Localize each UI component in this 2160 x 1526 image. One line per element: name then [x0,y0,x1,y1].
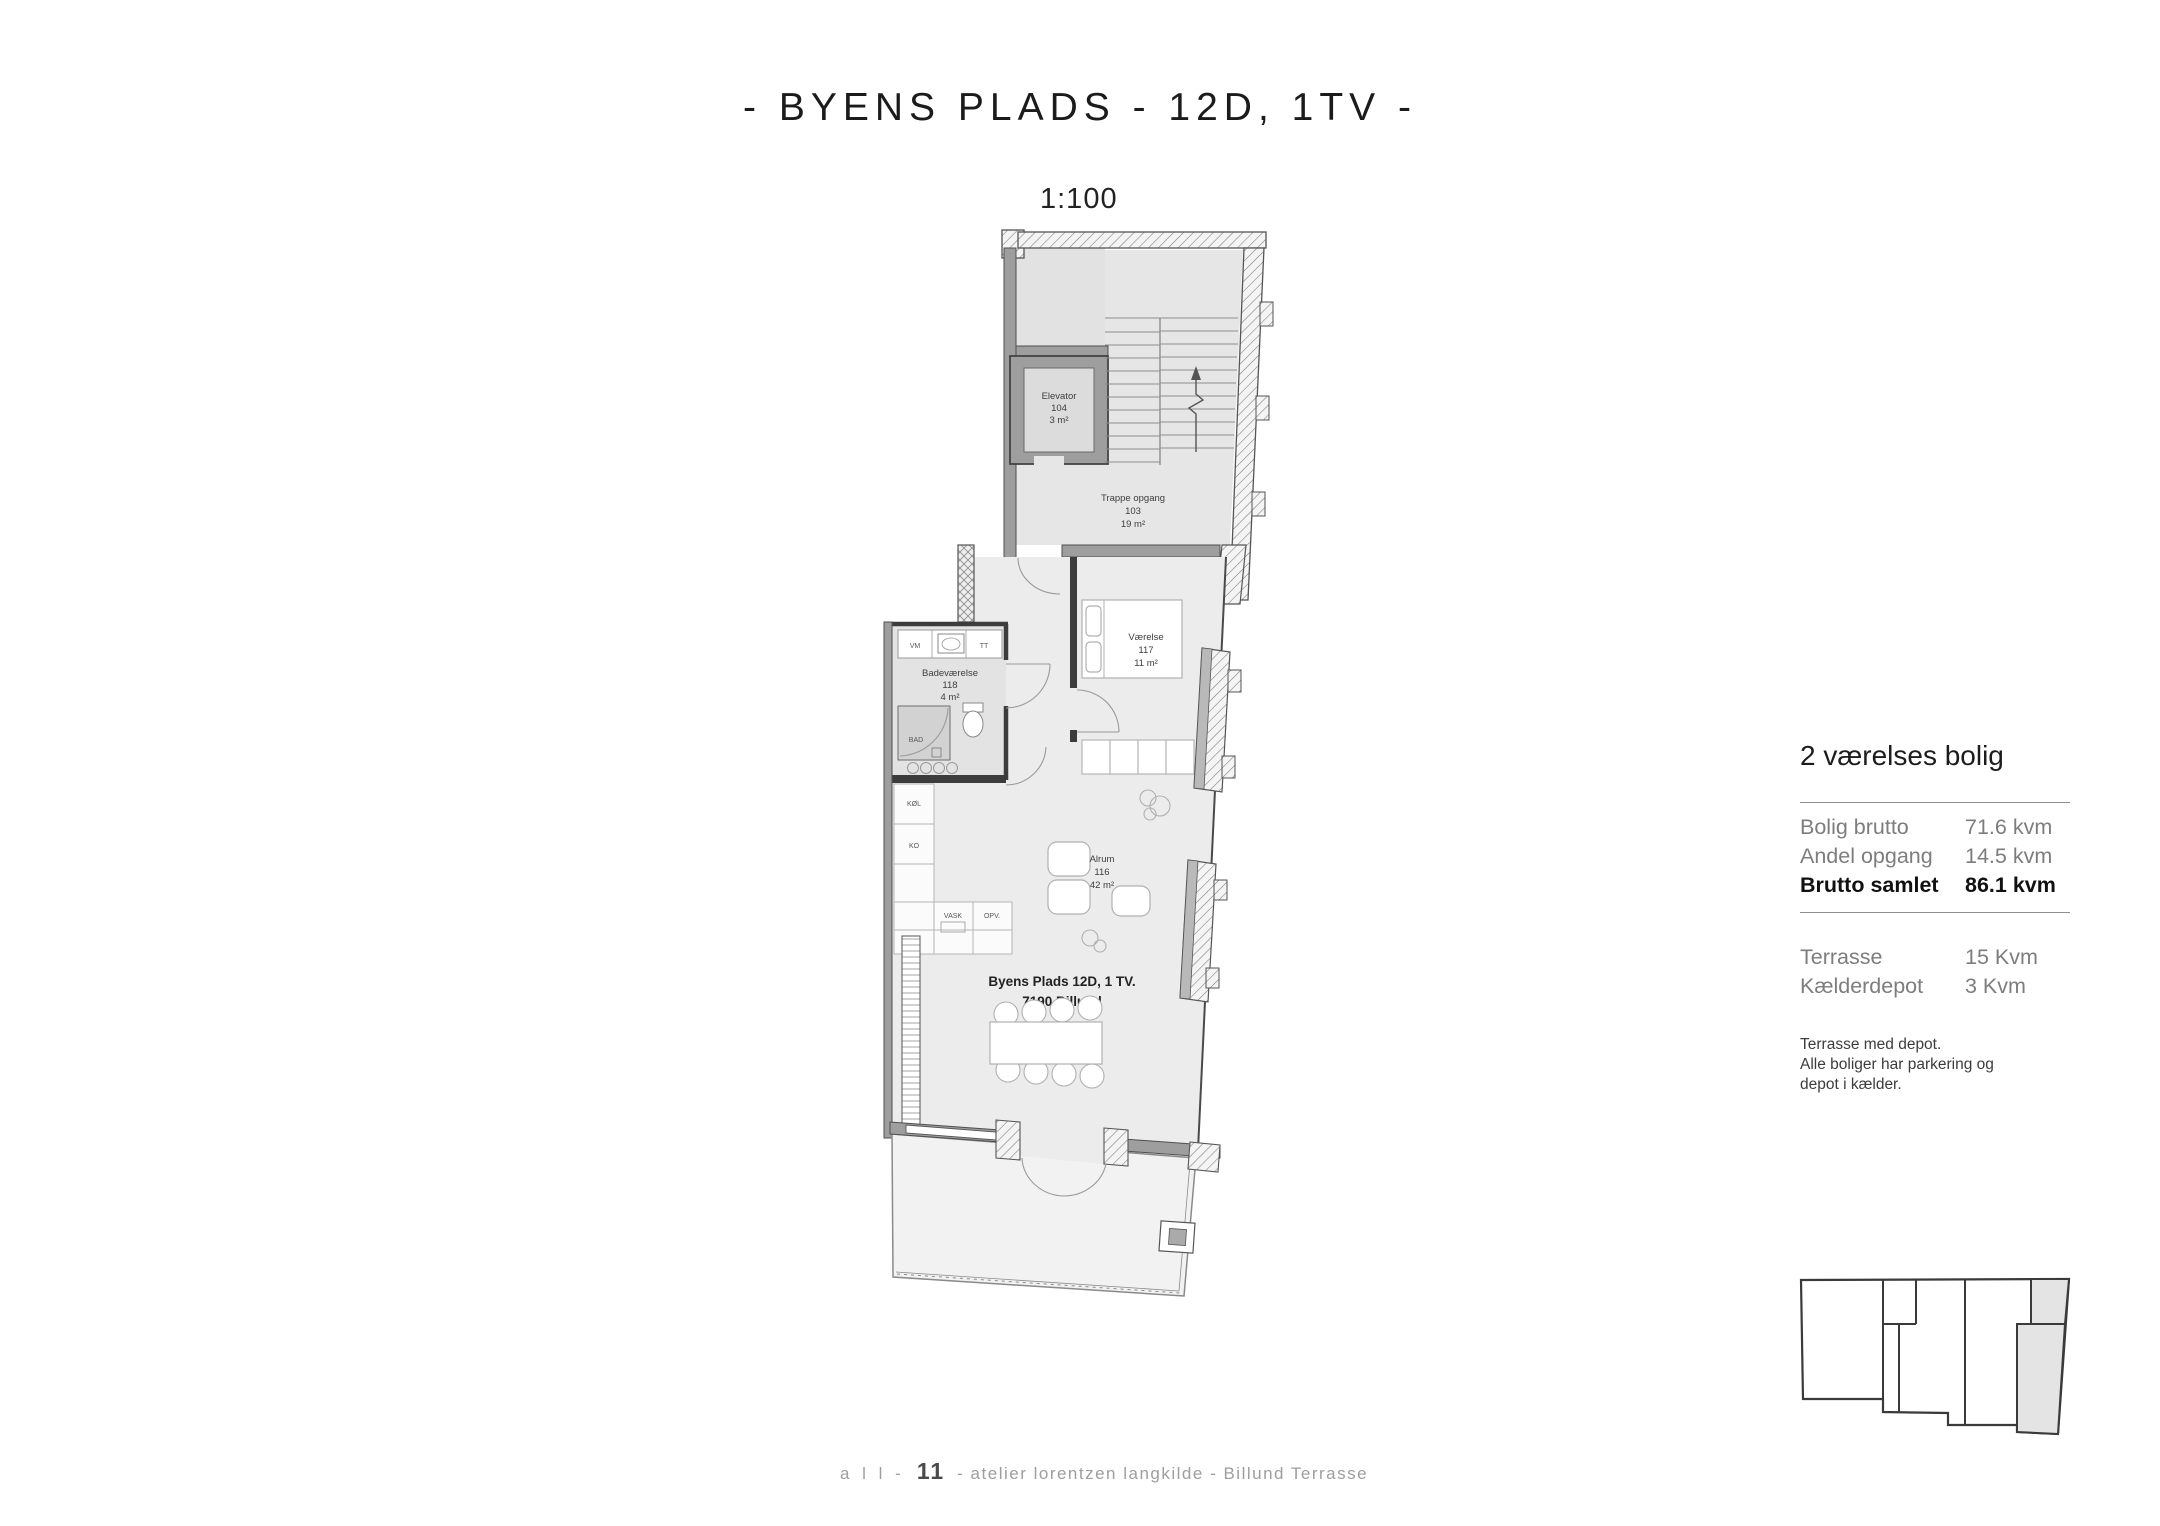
left-exterior-wall [884,622,892,1138]
key-plan [1793,1272,2073,1442]
divider [1800,912,2070,913]
floor-plan: Elevator 104 3 m² Trappe opgang 103 19 m… [878,225,1302,1330]
note-text: Terrasse med depot. Alle boliger har par… [1800,1035,2070,1095]
row-label: Brutto samlet [1800,871,1965,900]
apartment-type-heading: 2 værelses bolig [1800,740,2070,772]
wardrobe [1082,740,1194,774]
bottom-pier [1188,1142,1220,1172]
footer-credit: - atelier lorentzen langkilde - Billund … [957,1464,1368,1484]
note-line: Terrasse med depot. [1800,1035,2070,1055]
table-row-total: Brutto samlet 86.1 kvm [1800,871,2070,900]
highlighted-unit [2017,1324,2065,1434]
room-area: 4 m² [941,692,960,703]
elevator: Elevator 104 3 m² [1010,356,1108,465]
dryer-label: TT [980,643,989,650]
row-value: 86.1 kvm [1965,871,2056,900]
lounge-chair [1048,880,1090,914]
row-label: Kælderdepot [1800,972,1965,1001]
footer-page-number: 11 [917,1458,945,1485]
bedroom-wall [1070,557,1077,688]
stove-label: KO [909,843,920,850]
address-line1: Byens Plads 12D, 1 TV. [988,974,1135,989]
exterior-wall-stub [1256,396,1269,420]
table-row: Andel opgang 14.5 kvm [1800,842,2070,871]
row-label: Bolig brutto [1800,813,1965,842]
fridge-label: KØL [907,801,921,808]
toilet-icon [963,711,983,737]
lounge-chair [1048,842,1090,876]
highlighted-unit-top [2031,1279,2069,1324]
terrace [890,1120,1220,1296]
exterior-wall-stub [1260,302,1273,326]
bottom-pier [996,1120,1020,1160]
bathroom-bottom-wall [890,775,1006,783]
facade-stub [1228,670,1241,692]
pillow [1086,642,1101,672]
info-panel: 2 værelses bolig Bolig brutto 71.6 kvm A… [1800,740,2070,1095]
room-label: Badeværelse [922,668,978,679]
row-value: 3 Kvm [1965,972,2026,1001]
table-row: Kælderdepot 3 Kvm [1800,972,2070,1001]
room-area: 3 m² [1050,415,1069,426]
table-row: Terrasse 15 Kvm [1800,943,2070,972]
row-value: 71.6 kvm [1965,813,2052,842]
stair-hall-floor-left [1016,460,1108,545]
shower-label: BAD [909,737,923,744]
stair-landing-room [1016,248,1105,352]
footer-logo: a l l - [840,1464,905,1484]
room-area: 11 m² [1134,658,1158,669]
facade-stub [1214,880,1227,900]
exterior-wall-stub [1252,492,1265,516]
footer: a l l - 11 - atelier lorentzen langkilde… [840,1458,1368,1485]
page-title: - BYENS PLADS - 12D, 1TV - [0,86,2160,130]
terrace-post [1159,1221,1195,1253]
lounge-chair [1112,886,1150,916]
room-label: Værelse [1128,632,1163,643]
dishwasher-label: OPV. [984,913,1000,920]
room-number: 103 [1125,506,1141,517]
facade-stub [1206,968,1219,988]
shower [898,706,950,760]
room-number: 117 [1138,645,1153,656]
row-value: 15 Kvm [1965,943,2038,972]
washing-machine-label: VM [910,643,921,650]
entry-exterior-wall [958,545,974,622]
exterior-wall-top [1018,232,1266,248]
terrace-floor [892,1134,1196,1296]
stairwell-mid-wall [1016,346,1108,356]
note-line: Alle boliger har parkering og [1800,1055,2070,1075]
row-label: Andel opgang [1800,842,1965,871]
row-value: 14.5 kvm [1965,842,2052,871]
dining-table [990,1022,1102,1064]
room-number: 104 [1051,403,1067,414]
pillow [1086,606,1101,636]
note-line: depot i kælder. [1800,1075,2070,1095]
room-number: 118 [942,680,957,691]
room-label: Trappe opgang [1101,493,1165,504]
row-label: Terrasse [1800,943,1965,972]
room-label: Alrum [1090,854,1115,865]
extras-table: Terrasse 15 Kvm Kælderdepot 3 Kvm [1800,943,2070,1001]
room-label: Elevator [1042,391,1077,402]
table-row: Bolig brutto 71.6 kvm [1800,813,2070,842]
facade-stub [1222,756,1235,778]
room-area: 42 m² [1090,880,1114,891]
stairwell: Elevator 104 3 m² Trappe opgang 103 19 m… [1002,230,1273,604]
area-table: Bolig brutto 71.6 kvm Andel opgang 14.5 … [1800,803,2070,912]
stairwell-bottom-wall [1062,545,1220,557]
bottom-pier [1104,1128,1128,1166]
room-number: 116 [1094,867,1109,878]
scale-label: 1:100 [1040,183,1118,216]
elevator-door-gap [1034,456,1064,465]
room-area: 19 m² [1121,519,1145,530]
sink-label: VASK [944,913,962,920]
